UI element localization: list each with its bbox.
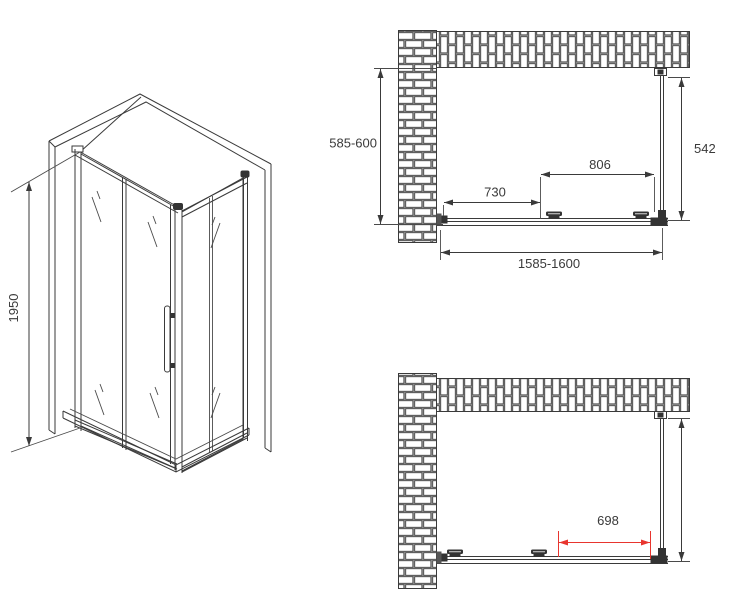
side-panel: [655, 69, 667, 220]
height-dimension: 1950: [6, 152, 80, 452]
dimension-left-span: 730: [444, 185, 541, 217]
dimension-door-span: 806: [541, 157, 655, 219]
back-post-cap: [241, 171, 250, 178]
brick-wall-left: [399, 31, 437, 243]
overall-width-dimension-label: 1585-1600: [518, 256, 580, 271]
opening-dimension-label: 698: [597, 513, 619, 528]
iso-view: 1950: [6, 94, 271, 473]
top-plan-view: 585-600 542 806 730: [329, 31, 715, 272]
dimension-overall-width: 1585-1600: [441, 228, 663, 271]
dimension-side-panel-unlabeled: [668, 419, 690, 562]
brick-wall-top: [437, 32, 690, 68]
wall-bracket: [437, 214, 442, 226]
door-track: [437, 548, 669, 564]
height-dimension-label: 1950: [6, 294, 21, 323]
brick-wall-top: [437, 379, 690, 412]
dimension-opening: 698: [559, 513, 651, 559]
side-panel: [655, 412, 667, 563]
brick-wall-left: [399, 374, 437, 589]
roller: [546, 212, 562, 220]
roller: [447, 550, 463, 558]
bottom-plan-view: 698: [399, 374, 691, 589]
door-span-dimension-label: 806: [589, 157, 611, 172]
corner-post-cap: [173, 203, 183, 210]
door-track: [437, 210, 669, 226]
left-span-dimension-label: 730: [484, 185, 506, 200]
roller: [531, 550, 547, 558]
wall-bracket: [437, 552, 442, 564]
shower-enclosure-technical-drawing: 1950: [0, 0, 729, 600]
front-left-post-cap: [72, 146, 83, 152]
roller: [633, 212, 649, 220]
iso-glass-faces: [81, 154, 243, 471]
depth-dimension-label: 585-600: [329, 136, 377, 151]
drawing-canvas: 1950: [0, 0, 729, 600]
side-panel-dimension-label: 542: [694, 141, 716, 156]
dimension-side-panel: 542: [668, 78, 716, 221]
